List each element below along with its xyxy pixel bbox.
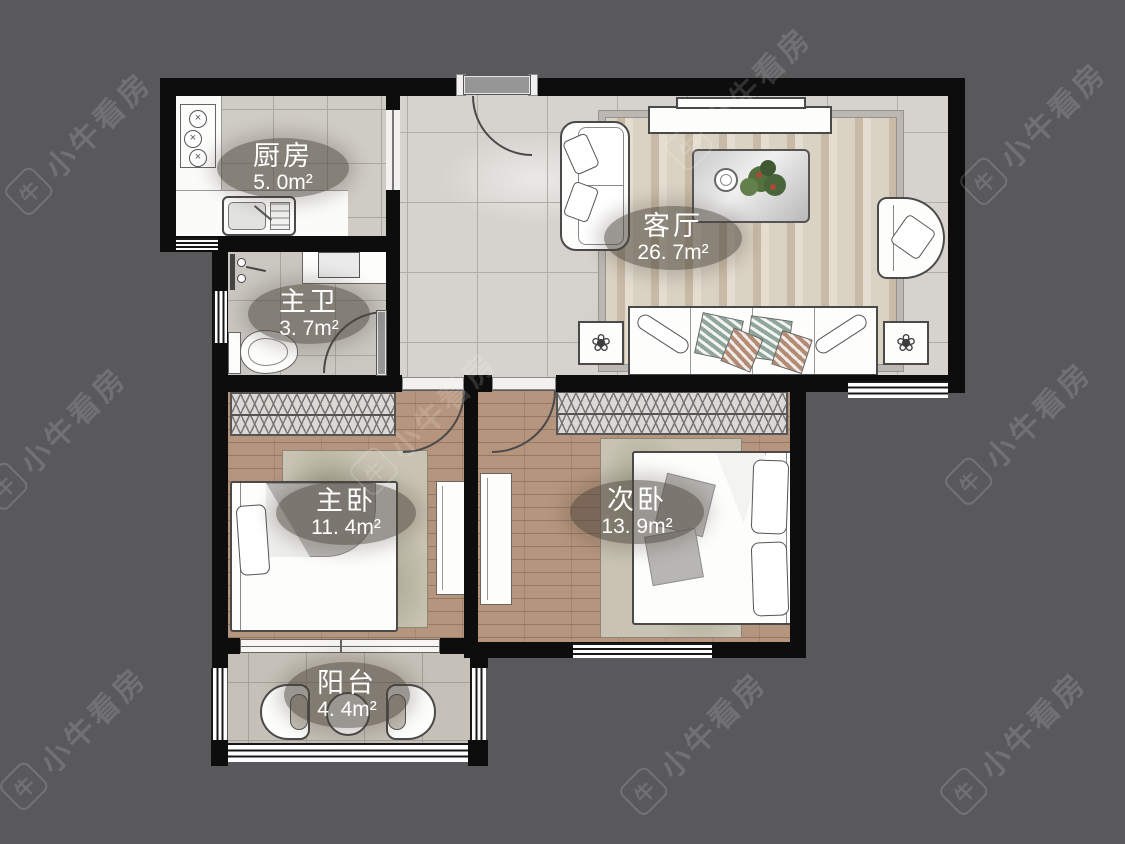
room-label-balcony: 阳台 4. 4m² xyxy=(284,662,410,728)
kitchen-sink-basin xyxy=(228,202,266,230)
plant-icon xyxy=(760,160,776,176)
room-label-second-bedroom: 次卧 13. 9m² xyxy=(570,480,704,544)
tv-cabinet xyxy=(648,106,832,134)
bench-divider xyxy=(690,308,691,374)
second-door-opening xyxy=(492,377,556,390)
watermark-text: 小牛看房 xyxy=(973,350,1100,477)
watermark: 牛 小牛看房 xyxy=(0,655,155,816)
stove-burner-icon: × xyxy=(184,130,202,148)
wall xyxy=(464,392,478,658)
wall xyxy=(211,740,228,766)
wall xyxy=(790,392,806,658)
wall xyxy=(160,78,176,252)
wall xyxy=(160,78,462,96)
watermark-text: 小牛看房 xyxy=(648,660,775,787)
room-area: 26. 7m² xyxy=(637,241,708,264)
watermark-text: 小牛看房 xyxy=(33,60,160,187)
room-label-living-room: 客厅 26. 7m² xyxy=(604,206,742,270)
room-area: 13. 9m² xyxy=(601,515,672,538)
second-bed-pillow xyxy=(751,541,790,616)
room-name: 次卧 xyxy=(607,486,667,514)
wall xyxy=(470,652,488,668)
plant-berry-icon xyxy=(770,184,776,190)
room-name: 客厅 xyxy=(643,212,703,240)
window xyxy=(211,668,227,740)
bench-divider xyxy=(814,308,815,374)
plant-berry-icon xyxy=(756,172,762,178)
room-area: 5. 0m² xyxy=(253,171,313,194)
room-name: 厨房 xyxy=(253,142,313,170)
wall xyxy=(468,740,488,766)
plant-box: ❀ xyxy=(578,321,624,365)
stove-burner-icon: × xyxy=(189,110,207,128)
master-wardrobe xyxy=(230,392,396,436)
room-label-master-bedroom: 主卧 11. 4m² xyxy=(276,481,416,545)
stove-burner-icon: × xyxy=(189,149,207,167)
wall xyxy=(386,238,400,378)
watermark: 牛 小牛看房 xyxy=(0,60,160,221)
watermark: 牛 小牛看房 xyxy=(955,50,1116,211)
balcony-sliding-door xyxy=(240,639,440,653)
watermark: 牛 小牛看房 xyxy=(935,660,1096,821)
watermark-logo-icon: 牛 xyxy=(0,759,51,813)
window xyxy=(470,668,486,740)
room-name: 阳台 xyxy=(317,669,377,697)
cup-inner xyxy=(720,174,732,186)
watermark-text: 小牛看房 xyxy=(28,655,155,782)
wall xyxy=(212,375,402,392)
room-area: 3. 7m² xyxy=(279,317,339,340)
shower-handle xyxy=(237,258,246,267)
tv xyxy=(676,97,806,109)
wall xyxy=(532,78,965,96)
master-nightstand xyxy=(436,481,466,595)
plant-icon xyxy=(740,178,758,196)
second-wardrobe xyxy=(556,391,788,435)
watermark-text: 小牛看房 xyxy=(988,50,1115,177)
bathroom-sink-basin xyxy=(318,252,360,278)
watermark-logo-icon: 牛 xyxy=(2,164,56,218)
master-bed-pillow xyxy=(236,504,271,576)
watermark-logo-icon: 牛 xyxy=(942,454,996,508)
shower-handle xyxy=(237,274,246,283)
wall xyxy=(212,650,228,668)
wardrobe-rail xyxy=(558,413,786,415)
room-name: 主卫 xyxy=(279,288,339,316)
wall xyxy=(948,78,965,393)
window xyxy=(213,291,227,343)
wall xyxy=(556,375,848,392)
wall xyxy=(212,392,228,638)
master-door-opening xyxy=(402,377,464,390)
wardrobe-rail xyxy=(232,414,394,416)
watermark-logo-icon: 牛 xyxy=(0,459,31,513)
watermark: 牛 小牛看房 xyxy=(615,660,776,821)
watermark-logo-icon: 牛 xyxy=(937,764,991,818)
plant-box: ❀ xyxy=(883,321,929,365)
room-area: 4. 4m² xyxy=(317,698,377,721)
entry-door-leaf xyxy=(464,76,530,94)
room-area: 11. 4m² xyxy=(311,516,381,539)
kitchen-sink-drainboard xyxy=(270,202,290,230)
wall xyxy=(464,375,492,392)
second-desk xyxy=(480,473,512,605)
master-nightstand-line xyxy=(442,486,443,590)
watermark: 牛 小牛看房 xyxy=(0,355,135,516)
second-desk-line xyxy=(487,478,488,600)
kitchen-door xyxy=(386,110,400,190)
bathroom-door-leaf xyxy=(377,311,386,375)
room-name: 主卧 xyxy=(316,487,376,515)
room-label-bathroom: 主卫 3. 7m² xyxy=(248,284,370,344)
watermark-text: 小牛看房 xyxy=(8,355,135,482)
window xyxy=(176,238,218,250)
second-bed-pillow xyxy=(751,459,790,534)
watermark-logo-icon: 牛 xyxy=(617,764,671,818)
watermark-text: 小牛看房 xyxy=(968,660,1095,787)
room-label-kitchen: 厨房 5. 0m² xyxy=(217,138,349,198)
window xyxy=(848,381,948,398)
shower-fixture xyxy=(230,254,235,290)
window xyxy=(573,643,712,658)
floorplan-canvas: × × × ❀ ❀ xyxy=(0,0,1125,844)
window xyxy=(228,743,468,762)
